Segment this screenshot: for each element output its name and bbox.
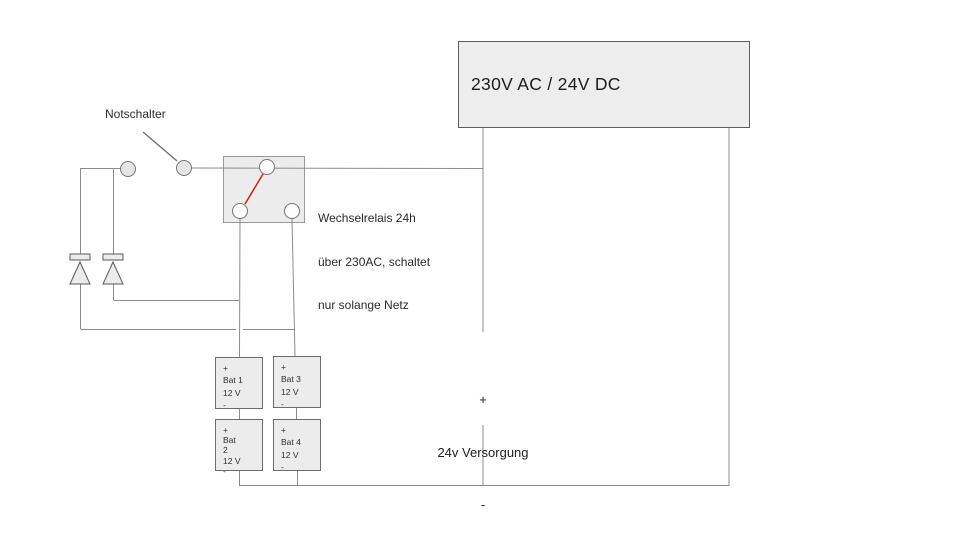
emergency-switch-label: Notschalter <box>105 107 166 121</box>
relay-box <box>223 156 305 223</box>
supply-24v-label: 24v Versorgung <box>408 444 558 462</box>
battery-1-label: +Bat 112 V- <box>223 362 243 411</box>
battery-2-box: +Bat212 V- <box>215 419 263 471</box>
relay-annotation: Wechselrelais 24h über 230AC, schaltet n… <box>318 182 430 342</box>
battery-4-label: +Bat 412 V- <box>281 424 301 473</box>
switch-blade <box>143 132 177 161</box>
battery-1-box: +Bat 112 V- <box>215 357 263 409</box>
relay-annotation-line2: über 230AC, schaltet <box>318 255 430 270</box>
relay-annotation-line1: Wechselrelais 24h <box>318 211 430 226</box>
battery-2-label: +Bat212 V- <box>223 425 241 476</box>
wire-relay-to-bat1 <box>240 219 241 358</box>
battery-3-box: +Bat 312 V- <box>273 356 321 408</box>
diode-left-triangle <box>70 262 90 284</box>
battery-3-label: +Bat 312 V- <box>281 361 301 410</box>
switch-terminal-right <box>177 161 192 176</box>
diode-right-triangle <box>103 262 123 284</box>
diode-left-cathode-bar <box>70 254 90 260</box>
switch-terminal-left <box>121 162 136 177</box>
power-supply-box: 230V AC / 24V DC <box>458 41 750 128</box>
supply-24v-plus: + <box>408 391 558 409</box>
power-supply-label: 230V AC / 24V DC <box>471 74 621 95</box>
relay-annotation-line3: nur solange Netz <box>318 298 430 313</box>
wire-relay-to-bat3 <box>292 219 295 356</box>
battery-4-box: +Bat 412 V- <box>273 419 321 471</box>
diode-right-cathode-bar <box>103 254 123 260</box>
circuit-diagram-canvas: 230V AC / 24V DC +Bat 112 V- +Bat212 V- … <box>0 0 960 540</box>
supply-24v-label-block: + 24v Versorgung - <box>408 356 558 540</box>
supply-24v-minus: - <box>408 496 558 514</box>
